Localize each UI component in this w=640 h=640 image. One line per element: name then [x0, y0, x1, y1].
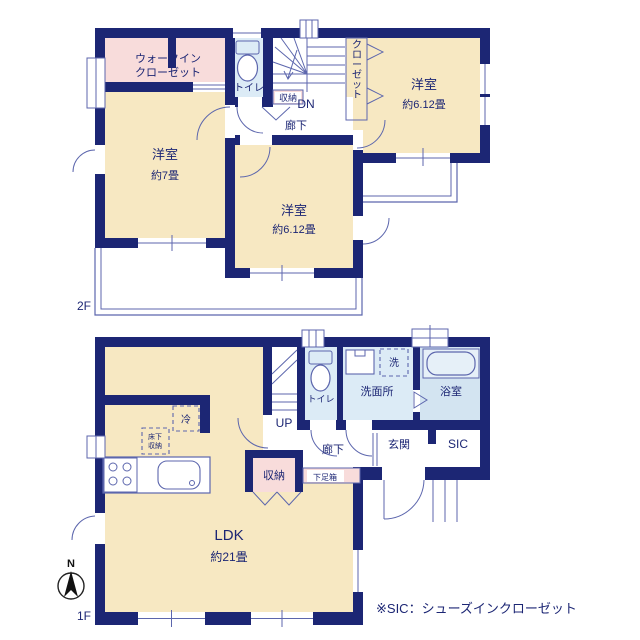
floorplan-image: ウォークイン クローゼット トイレ 収納 DN クローゼット 廊下 洋室 約6.…	[0, 0, 640, 640]
label-storage-2f: 収納	[279, 92, 297, 103]
washbasin-icon	[346, 350, 374, 374]
label-bedroom-ne-size: 約6.12畳	[402, 97, 445, 111]
bathtub-icon	[423, 349, 479, 378]
label-sic: SIC	[448, 437, 468, 451]
label-dn: DN	[297, 97, 314, 111]
label-floor1: 1F	[77, 609, 91, 623]
label-up: UP	[276, 416, 293, 430]
label-ldk-size: 約21畳	[210, 549, 247, 564]
footnote-sic: ※SIC：シューズインクローゼット	[376, 601, 577, 616]
stove-icon	[104, 458, 137, 492]
compass-icon: N	[58, 558, 84, 599]
balcony-ne	[363, 163, 457, 202]
label-entrance: 玄関	[388, 437, 410, 451]
room-ldk-fill	[303, 483, 353, 493]
room-ldk-right	[263, 492, 353, 612]
label-closet-2f: クローゼット	[352, 39, 362, 101]
label-toilet-2f: トイレ	[234, 83, 264, 94]
label-bedroom-west-size: 約7畳	[151, 168, 179, 182]
label-walk-in-closet-2: クローゼット	[135, 66, 201, 79]
label-bedroom-center-size: 約6.12畳	[272, 222, 315, 236]
label-washer: 洗	[389, 357, 399, 369]
label-floor2: 2F	[77, 299, 91, 313]
label-shoe-box: 下足箱	[313, 472, 337, 482]
floorplan-svg: ウォークイン クローゼット トイレ 収納 DN クローゼット 廊下 洋室 約6.…	[0, 0, 640, 640]
label-bedroom-ne: 洋室	[411, 77, 437, 92]
label-walk-in-closet-1: ウォークイン	[135, 52, 201, 65]
floor1-plan: 冷 床下 収納 UP トイレ 洗面所 洗 浴室 廊下 玄関 SIC 収納 下足箱…	[72, 325, 490, 627]
label-bedroom-west: 洋室	[152, 147, 178, 162]
label-bedroom-center: 洋室	[281, 203, 307, 218]
label-underfloor-2: 収納	[148, 441, 162, 450]
room-bedroom-ne	[367, 38, 480, 153]
label-bath: 浴室	[440, 384, 462, 398]
label-underfloor-1: 床下	[148, 432, 162, 441]
label-hallway-2f: 廊下	[285, 118, 307, 132]
label-north: N	[67, 558, 75, 570]
room-bedroom-west	[105, 88, 225, 238]
label-ldk: LDK	[214, 527, 243, 544]
label-washroom: 洗面所	[361, 385, 394, 398]
label-hallway-1f: 廊下	[322, 442, 344, 456]
label-fridge: 冷	[181, 413, 191, 426]
label-storage-1f: 収納	[263, 469, 285, 482]
floor2-plan: ウォークイン クローゼット トイレ 収納 DN クローゼット 廊下 洋室 約6.…	[73, 20, 490, 315]
label-toilet-1f: トイレ	[307, 394, 334, 404]
sink-icon	[158, 461, 200, 489]
kitchen-counter	[103, 457, 210, 493]
